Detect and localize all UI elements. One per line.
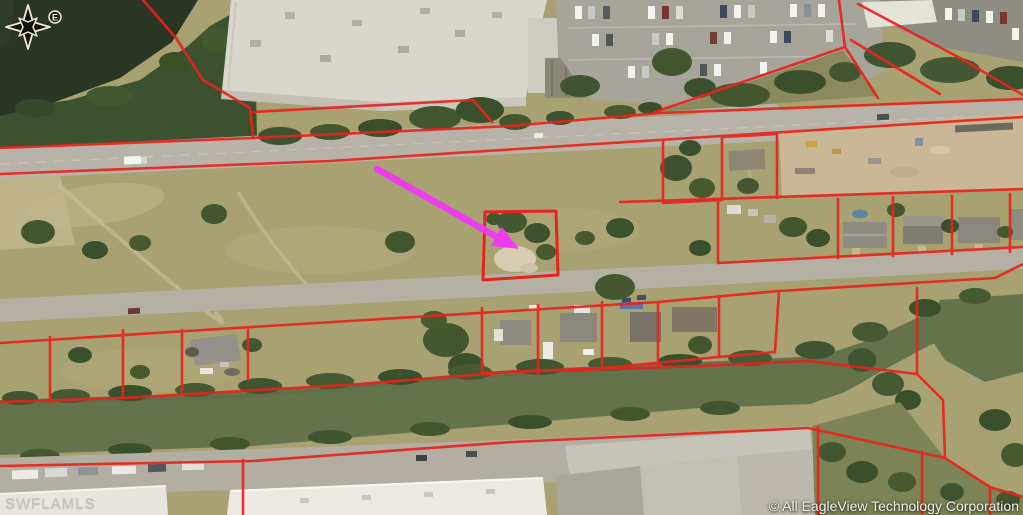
aerial-photo: E (0, 0, 1023, 515)
watermark-mls: SWFLAMLS (5, 495, 96, 512)
truck-on-road (124, 155, 147, 164)
aerial-map-viewport: E SWFLAMLS © All EagleView Technology Co… (0, 0, 1023, 515)
compass-east-label: E (52, 13, 58, 23)
watermark-copyright: © All EagleView Technology Corporation (769, 498, 1019, 514)
